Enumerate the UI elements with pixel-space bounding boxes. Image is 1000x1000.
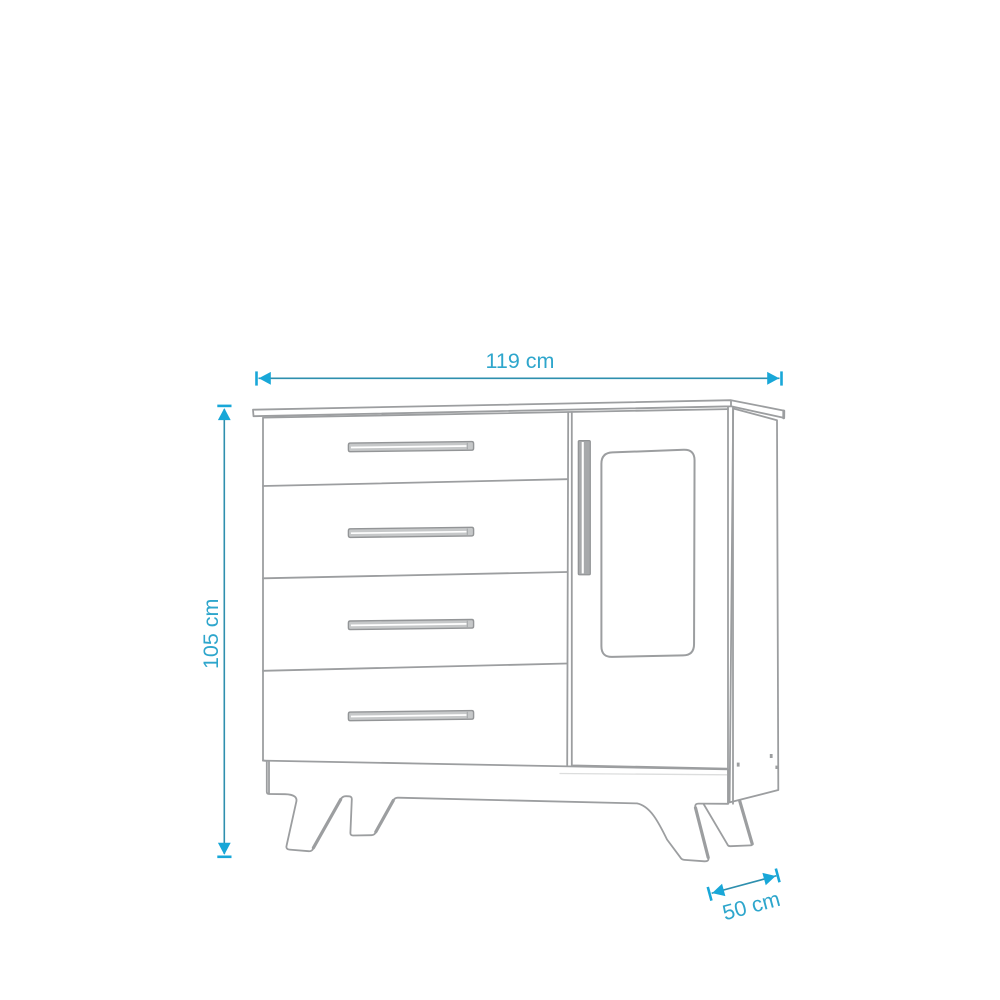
svg-text:50 cm: 50 cm bbox=[720, 887, 783, 925]
svg-text:105 cm: 105 cm bbox=[199, 599, 223, 670]
svg-text:119 cm: 119 cm bbox=[486, 349, 555, 373]
